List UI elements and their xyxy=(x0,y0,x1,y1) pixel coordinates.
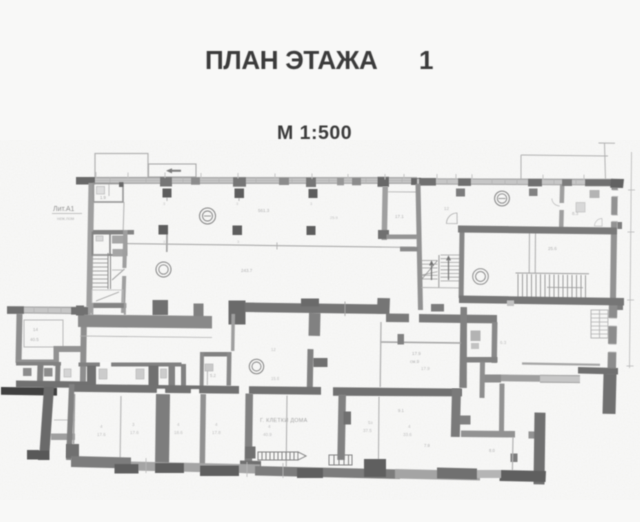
svg-text:37.5: 37.5 xyxy=(363,428,372,433)
svg-text:561.3: 561.3 xyxy=(258,208,270,213)
svg-text:14: 14 xyxy=(33,327,39,332)
svg-text:М 1:500: М 1:500 xyxy=(277,122,352,144)
svg-text:17.1: 17.1 xyxy=(395,214,404,219)
svg-text:25.9: 25.9 xyxy=(330,215,339,220)
svg-text:15.6: 15.6 xyxy=(271,376,280,381)
svg-text:8.3: 8.3 xyxy=(572,211,579,216)
svg-text:17.8: 17.8 xyxy=(212,430,221,435)
svg-text:40.5: 40.5 xyxy=(30,337,39,342)
svg-text:243.7: 243.7 xyxy=(241,268,253,273)
svg-text:1.9: 1.9 xyxy=(100,195,106,200)
svg-text:40.9: 40.9 xyxy=(263,432,272,437)
svg-text:17.6: 17.6 xyxy=(97,432,106,437)
svg-text:неж.пом: неж.пом xyxy=(57,216,74,221)
svg-text:33.6: 33.6 xyxy=(403,432,412,437)
svg-text:5з: 5з xyxy=(368,420,373,425)
svg-text:5.2: 5.2 xyxy=(210,373,216,378)
svg-text:1: 1 xyxy=(419,45,433,75)
svg-text:6.3: 6.3 xyxy=(500,340,507,345)
svg-text:7.9: 7.9 xyxy=(424,443,430,448)
svg-text:9.1: 9.1 xyxy=(398,408,404,413)
svg-text:12: 12 xyxy=(444,206,450,211)
svg-text:ПЛАН ЭТАЖА: ПЛАН ЭТАЖА xyxy=(205,45,378,75)
svg-text:Лит.А1: Лит.А1 xyxy=(53,206,75,213)
svg-text:см.9: см.9 xyxy=(410,359,420,364)
svg-text:17.6: 17.6 xyxy=(130,430,139,435)
svg-text:17.9: 17.9 xyxy=(421,366,430,371)
svg-text:12: 12 xyxy=(271,347,276,352)
svg-text:25.6: 25.6 xyxy=(548,246,557,251)
svg-text:17.9: 17.9 xyxy=(412,351,421,356)
svg-text:8.0: 8.0 xyxy=(489,448,495,453)
svg-text:18.6: 18.6 xyxy=(174,430,183,435)
